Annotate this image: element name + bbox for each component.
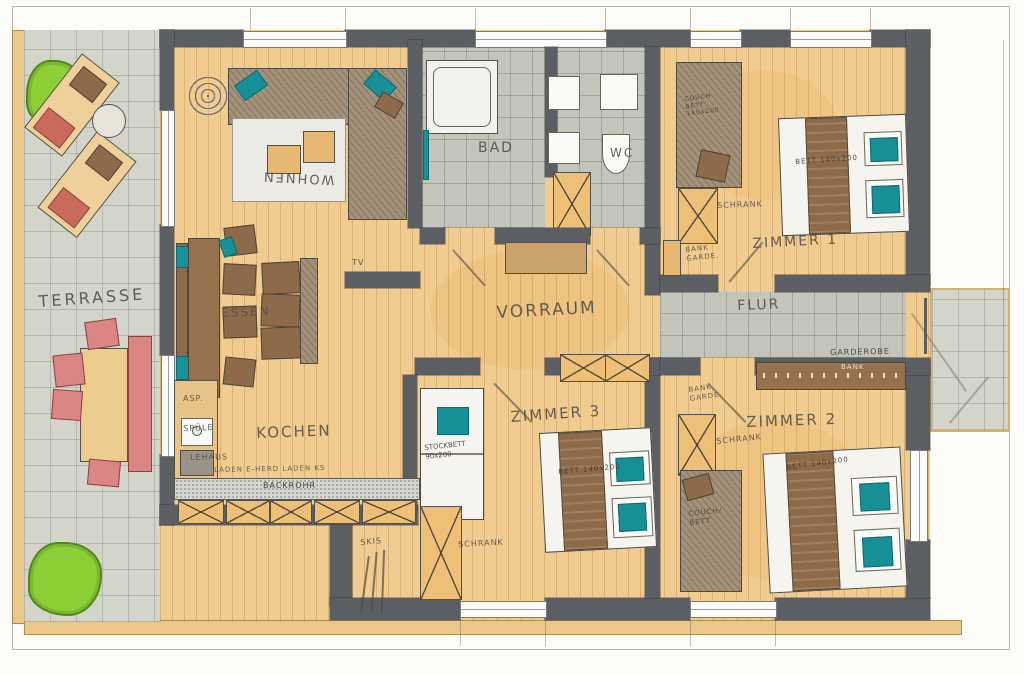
terrace-bench [128,336,152,472]
room-label-zimmer2: ZIMMER 2 [746,410,837,431]
room-label-essen: ESSEN [221,304,271,320]
garderobe-bench [756,362,906,390]
window [243,31,347,48]
terrace-table [80,348,128,462]
window [690,601,777,618]
annotation-bankgarde-z1: BANK GARDE. [685,243,720,264]
wall [660,275,718,292]
dining-chair [261,261,301,295]
tv-wall-stub [345,272,420,288]
dining-chair [223,356,257,387]
annotation-spuele: SPÜLE [183,423,214,433]
annotation-couchbett-z1: COUCH BETT 140x200 [684,91,720,118]
annotation-garderobe: GARDEROBE [830,347,890,357]
base-cabinet [314,500,360,524]
room-label-flur: FLUR [737,296,781,313]
wall [640,228,660,244]
stove-spiral-icon [186,74,230,118]
coffee-table [303,131,335,163]
bed-z2 [762,446,907,593]
terrace-chair [84,318,120,350]
sideboard [300,258,318,364]
deck-edge-bottom [24,620,962,635]
annotation-backrohr: BACKROHR [263,481,316,490]
annotation-lehaus: LEHAUS [190,452,228,462]
pencil-line [460,620,461,646]
wall [420,228,445,244]
wall [408,40,422,228]
pencil-line [250,8,251,30]
wall [330,598,460,620]
wall [775,275,930,292]
annotation-tv: TV [352,258,364,267]
bench [663,240,681,276]
wardrobe [560,354,607,382]
room-label-bad: BAD [478,140,514,156]
installation-shaft [553,172,591,236]
wall [906,540,930,598]
wall [775,598,930,620]
base-cabinet [226,500,270,524]
glass-door [161,355,175,457]
annotation-asp: ASP. [183,394,204,403]
base-cabinet [362,500,416,524]
dining-chair [222,263,257,296]
wardrobe [420,506,462,600]
pencil-line [605,8,606,30]
room-label-wc: WC [610,146,634,160]
window [475,31,607,48]
entry-door-leaf [924,298,927,354]
wall [906,30,930,285]
washbasin [548,76,580,110]
annotation-schrank-z1: SCHRANK [717,199,763,210]
wardrobe [678,414,716,476]
washbasin [548,132,580,164]
bathtub [426,60,498,134]
wall [740,30,790,47]
window [460,601,547,618]
base-cabinet [270,500,312,524]
wc-sink [600,74,638,110]
side-table [92,104,126,138]
terrace-chair [87,459,121,488]
window [790,31,872,48]
shower-glass [423,130,429,180]
pencil-line [790,8,791,30]
bed-z3 [539,427,657,553]
pencil-line [690,620,691,646]
annotation-bank: BANK [841,363,864,371]
room-label-kochen: KOCHEN [256,421,332,442]
pencil-line [690,8,691,30]
entry-porch [930,288,1010,432]
wall [330,525,352,605]
wardrobe [678,188,718,244]
wall [160,30,174,110]
floor-plan-sketch: TERRASSE WOHNEN BAD WC ZIMMER 1 ESSEN KO… [0,0,1024,675]
bush-icon [28,542,102,616]
bed-z1 [778,114,910,236]
pencil-line [1003,40,1004,430]
pencil-line [545,620,546,646]
pencil-line [345,8,346,30]
wall [605,30,690,47]
terrace-chair [52,353,85,388]
annotation-couchbett-z2: COUCH/ BETT [688,506,724,527]
annotation-skis: SKIS [360,536,382,547]
window [910,450,928,542]
coat-hooks-icon [763,373,899,378]
wardrobe [605,354,650,382]
wall [645,47,660,295]
dining-chair [260,326,301,359]
dining-table [188,238,220,398]
wall [545,598,690,620]
terrace-chair [51,389,83,421]
wall [660,358,700,375]
pencil-line [870,8,871,30]
base-cabinet [178,500,224,524]
pencil-line [775,620,776,646]
pencil-line [475,8,476,30]
cushion [695,149,730,183]
glass-door [161,110,175,227]
wall [160,225,174,355]
window [690,31,742,48]
vorraum-cabinet [505,242,587,274]
wall [415,358,480,375]
